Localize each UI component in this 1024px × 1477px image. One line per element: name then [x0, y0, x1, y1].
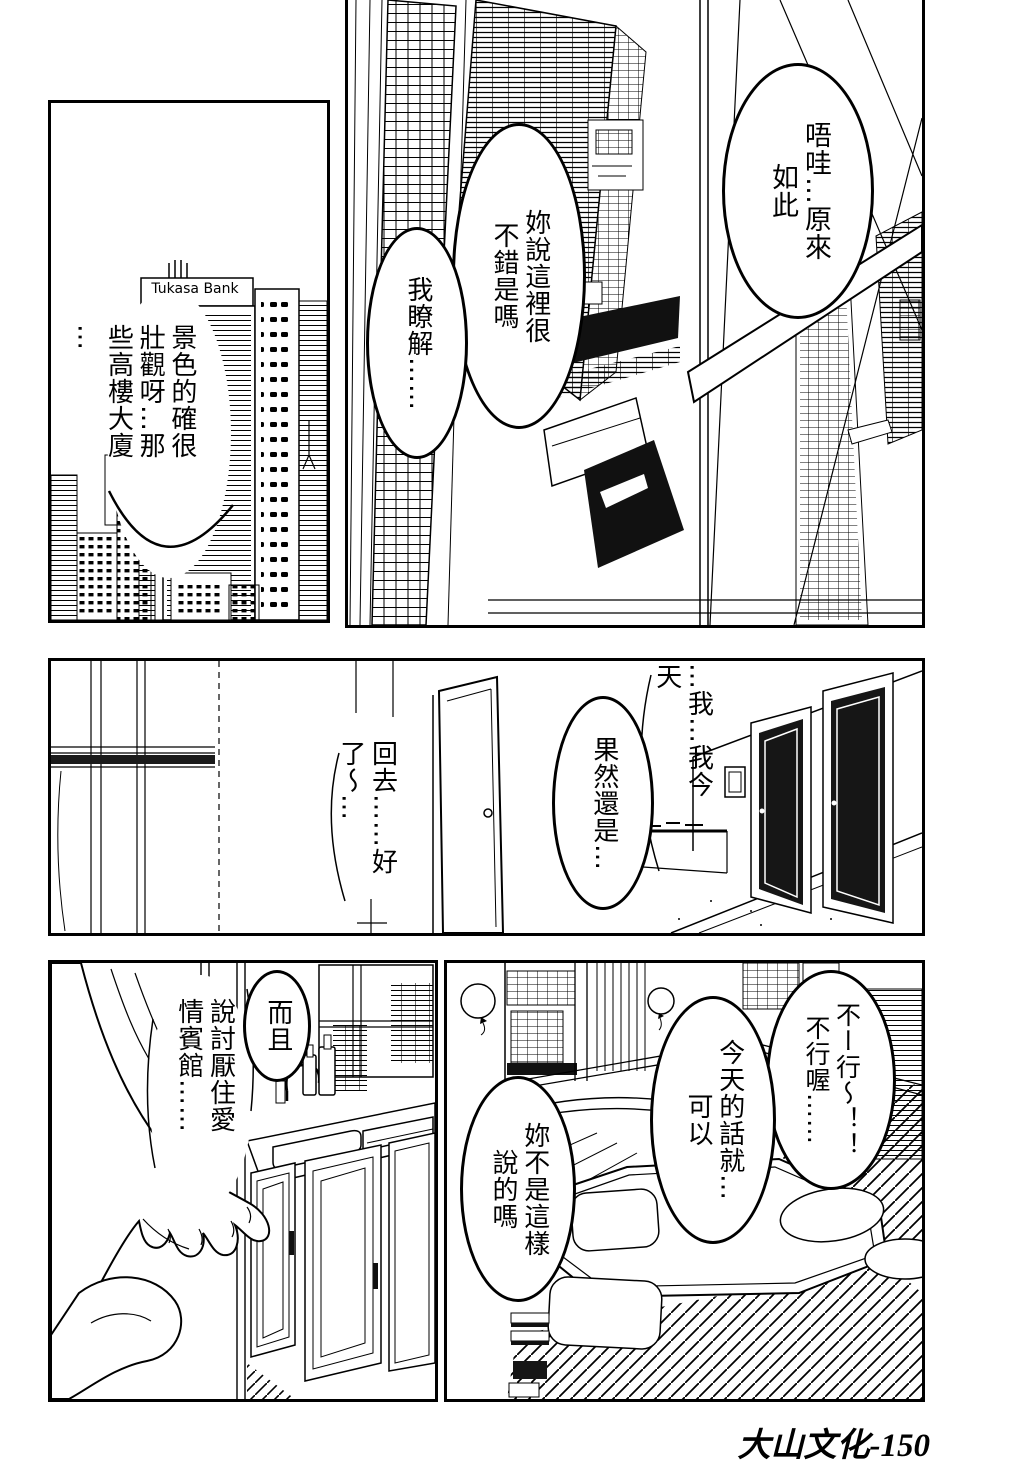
monologue-go-home-text: 回去……好 了～… — [334, 740, 397, 920]
panel-kitchen: 而且 說討厭住愛 情賓館…… — [48, 960, 438, 1402]
balloon-icon — [648, 988, 674, 1030]
bank-sign: Tukasa Bank — [138, 276, 252, 302]
bubble-understand-text: 唔哇…原來 如此 — [765, 121, 831, 261]
bubble-after-all-text: 果然還是… — [587, 736, 619, 871]
bubble-you-said-text: 妳不是這樣 說的嗎 — [486, 1122, 549, 1257]
panel-city-view: Tukasa Bank 景色的確很 壯觀呀…那 些高樓大廈 … — [48, 100, 330, 623]
panel-hallway: 果然還是… …我…我今 天 回去……好 了～… — [48, 658, 925, 936]
speech-bubble-nice-here: 妳說這裡很 不錯是嗎 — [452, 123, 586, 429]
manga-page: Tukasa Bank 景色的確很 壯觀呀…那 些高樓大廈 … — [0, 0, 1024, 1477]
speech-bubble-after-all: 果然還是… — [552, 696, 654, 910]
hallway-art — [51, 661, 922, 933]
monologue-view-text: 景色的確很 壯觀呀…那 些高樓大廈 … — [70, 324, 197, 584]
bubble-no-way-text: 不ー行～！！ 不行喔…… — [801, 1002, 862, 1158]
speech-bubble-i-know: 我瞭解…… — [366, 227, 468, 459]
speech-bubble-today-ok: 今天的話就… 可以 — [650, 996, 776, 1244]
bubble-i-know-text: 我瞭解…… — [401, 276, 433, 411]
speech-bubble-no-way: 不ー行～！！ 不行喔…… — [766, 970, 896, 1190]
page-caption: 大山文化-150 — [660, 1418, 930, 1466]
speech-bubble-you-said: 妳不是這樣 說的嗎 — [460, 1076, 576, 1302]
bubble-today-ok-text: 今天的話就… 可以 — [681, 1039, 744, 1201]
speech-bubble-besides: 而且 — [243, 970, 311, 1082]
panel-room: 不ー行～！！ 不行喔…… 今天的話就… 可以 妳不是這樣 說的嗎 — [444, 960, 925, 1402]
monologue-today-text: …我…我今 天 — [650, 663, 713, 903]
balloon-icon — [461, 984, 495, 1035]
bubble-besides-text: 而且 — [261, 999, 293, 1053]
speech-bubble-understand: 唔哇…原來 如此 — [722, 63, 874, 319]
bubble-nice-here-text: 妳說這裡很 不錯是嗎 — [487, 209, 550, 344]
monologue-hotel-text: 說討厭住愛 情賓館…… — [172, 998, 235, 1193]
panel-window-view: 妳說這裡很 不錯是嗎 我瞭解…… 唔哇…原來 如此 — [345, 0, 925, 628]
